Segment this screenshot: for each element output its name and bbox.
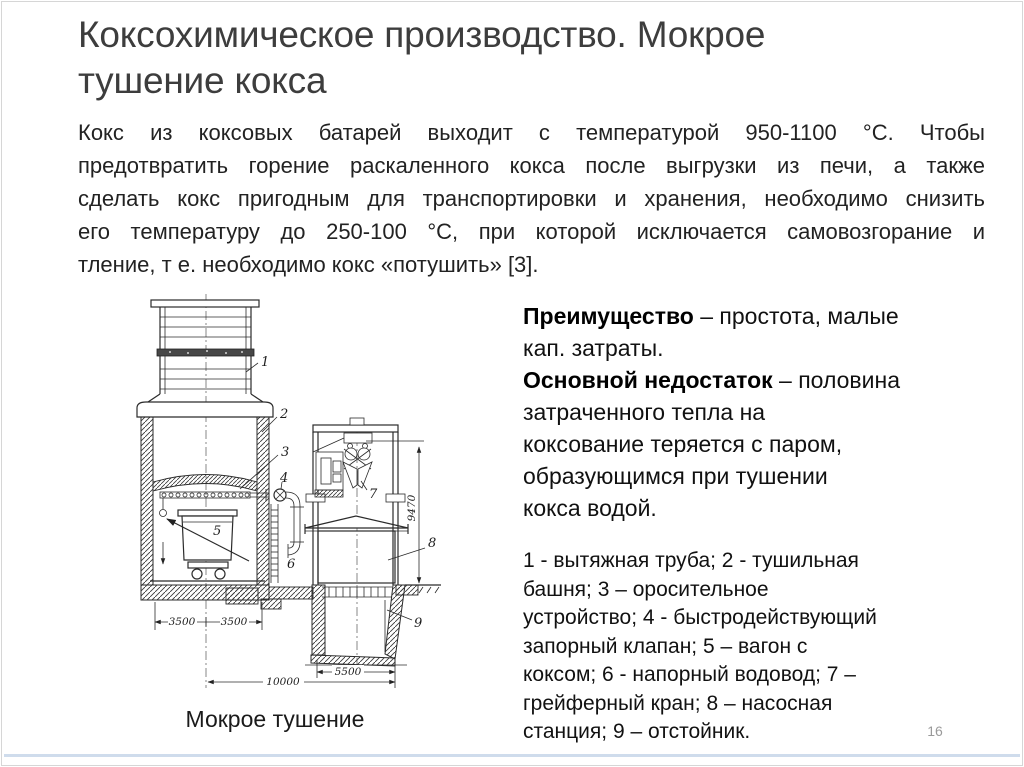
drawback-line-1: Основной недостаток – половина [523, 364, 943, 396]
advantage-rest: – простота, малые [694, 303, 899, 329]
legend-line: башня; 3 – оросительное [523, 576, 943, 605]
dim-10000: 10000 [266, 676, 300, 688]
settling-pit [305, 585, 418, 666]
drawback-line: коксование теряется с паром, [523, 428, 943, 460]
legend-line: коксом; 6 - напорный водовод; 7 – [523, 661, 943, 690]
legend-line: запорный клапан; 5 – вагон с [523, 633, 943, 662]
label-1: 1 [261, 355, 269, 370]
spray-vault [153, 475, 257, 492]
drawback-line: кокса водой. [523, 492, 943, 524]
legend-line: грейферный кран; 8 – насосная [523, 690, 943, 719]
coke-wagon [150, 510, 265, 581]
slide-title: Коксохимическое производство. Мокрое туш… [78, 12, 978, 104]
dim-5500: 5500 [335, 666, 362, 678]
grab-crane [305, 418, 408, 585]
label-2: 2 [279, 407, 288, 422]
wall-ladder [271, 504, 278, 583]
title-line-2: тушение кокса [78, 58, 978, 104]
page-number: 16 [900, 723, 970, 739]
dim-9470: 9470 [406, 494, 418, 521]
figure-legend: 1 - вытяжная труба; 2 - тушильная башня;… [523, 547, 943, 747]
advantage-term: Преимущество [523, 303, 694, 329]
wet-quenching-diagram: 3500 3500 5500 10000 9470 1 2 3 4 5 6 [85, 292, 515, 697]
drawback-line: образующимся при тушении [523, 460, 943, 492]
legend-line: устройство; 4 - быстродействующий [523, 604, 943, 633]
paragraph-line: тление, т е. необходимо кокс «потушить» … [78, 248, 985, 281]
dim-3500-left: 3500 [169, 616, 196, 628]
intro-paragraph: Кокс из коксовых батарей выходит с темпе… [78, 116, 985, 281]
drawback-rest: – половина [773, 367, 900, 393]
drawback-line: затраченного тепла на [523, 396, 943, 428]
paragraph-line: Кокс из коксовых батарей выходит с темпе… [78, 116, 985, 149]
legend-line: 1 - вытяжная труба; 2 - тушильная [523, 547, 943, 576]
chimney-stack [148, 300, 263, 402]
paragraph-line: предотвратить горение раскаленного кокса… [78, 149, 985, 182]
paragraph-line: сделать кокс пригодным для транспортиров… [78, 182, 985, 215]
label-3: 3 [281, 445, 289, 460]
label-4: 4 [279, 471, 288, 486]
grapple-bucket [343, 448, 372, 488]
bottom-accent-bar [4, 754, 1020, 757]
label-9: 9 [414, 616, 422, 631]
label-6: 6 [287, 557, 295, 572]
slide: Коксохимическое производство. Мокрое туш… [0, 0, 1024, 767]
figure-caption: Мокрое тушение [85, 706, 465, 733]
advantage-line-2: кап. затраты. [523, 332, 943, 364]
notes-panel: Преимущество – простота, малые кап. затр… [523, 300, 943, 524]
ground-foundation [141, 585, 313, 609]
label-7: 7 [369, 487, 378, 502]
label-5: 5 [213, 524, 221, 539]
label-8: 8 [428, 536, 436, 551]
title-line-1: Коксохимическое производство. Мокрое [78, 12, 978, 58]
paragraph-line: его температуру до 250-100 °С, при котор… [78, 215, 985, 248]
legend-line: станция; 9 – отстойник. [523, 718, 943, 747]
dim-3500-right: 3500 [221, 616, 248, 628]
drawback-term: Основной недостаток [523, 367, 773, 393]
advantage-line-1: Преимущество – простота, малые [523, 300, 943, 332]
